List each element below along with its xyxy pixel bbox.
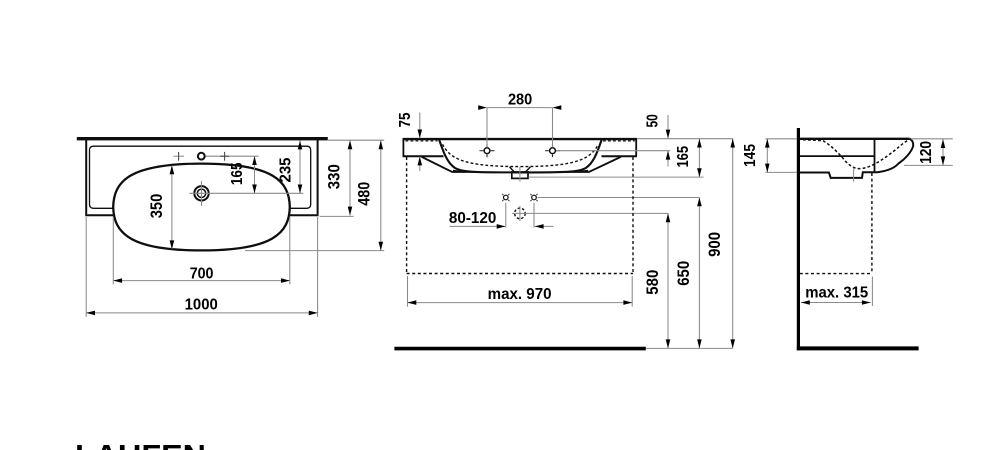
svg-text:75: 75: [397, 112, 414, 127]
svg-text:330: 330: [325, 164, 344, 189]
svg-text:580: 580: [643, 270, 662, 295]
svg-text:900: 900: [705, 232, 724, 257]
svg-text:max. 315: max. 315: [805, 285, 868, 302]
svg-text:235: 235: [277, 157, 294, 182]
svg-text:165: 165: [229, 162, 246, 185]
svg-text:350: 350: [147, 194, 166, 219]
svg-text:80-120: 80-120: [449, 210, 496, 227]
svg-text:1000: 1000: [185, 296, 218, 313]
svg-text:145: 145: [742, 144, 759, 167]
svg-text:165: 165: [675, 146, 692, 168]
svg-text:120: 120: [918, 141, 935, 164]
svg-text:280: 280: [508, 91, 532, 108]
svg-text:max. 970: max. 970: [488, 286, 552, 303]
svg-text:650: 650: [674, 261, 693, 286]
svg-text:700: 700: [190, 266, 214, 283]
svg-text:LAUFEN: LAUFEN: [75, 438, 206, 450]
svg-text:50: 50: [645, 114, 662, 127]
svg-text:480: 480: [355, 182, 374, 206]
